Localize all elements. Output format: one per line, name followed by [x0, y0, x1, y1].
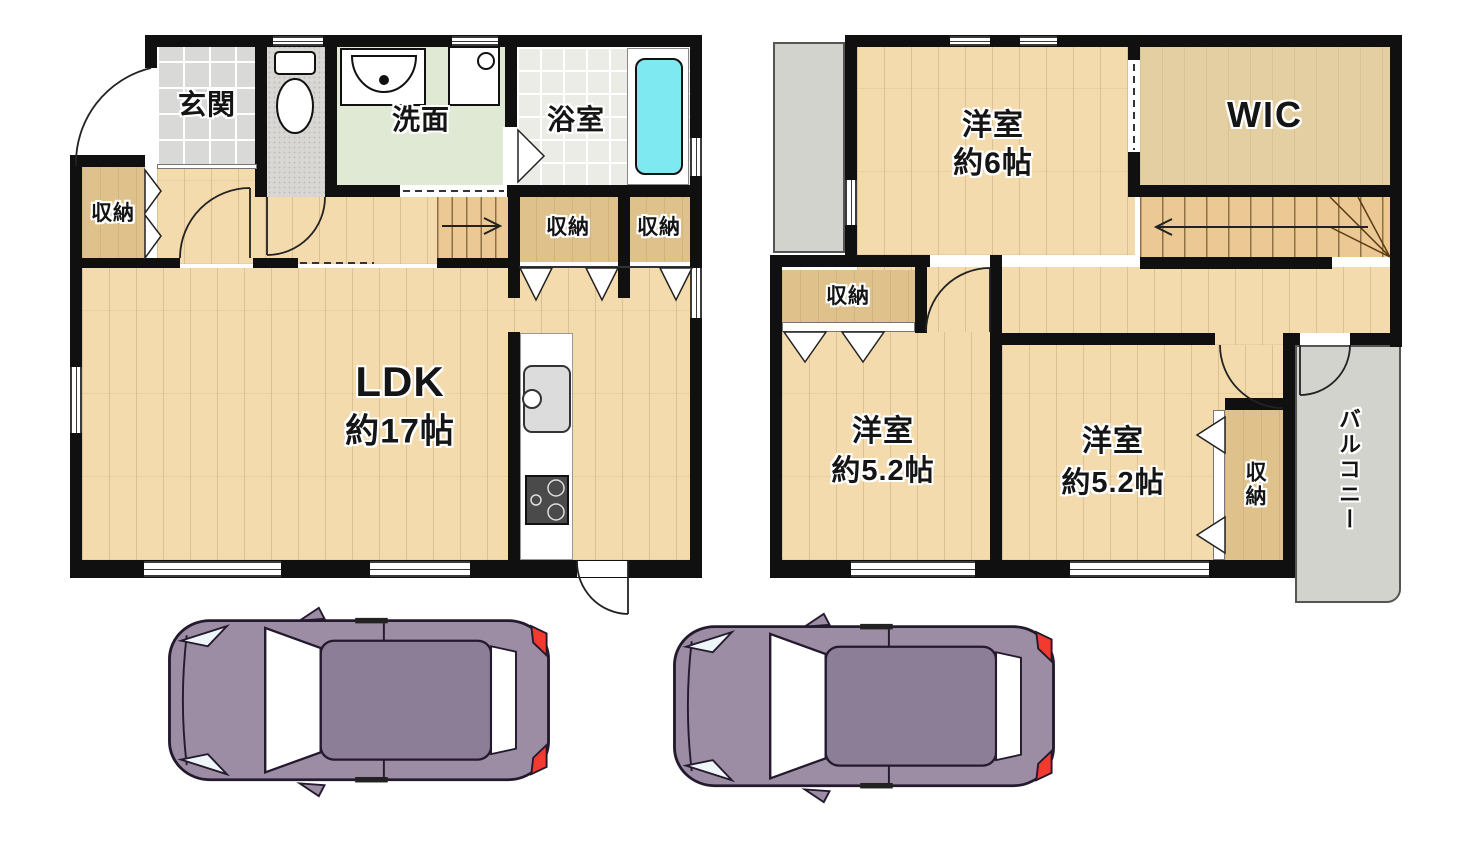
entrance-door-arc-icon [76, 68, 151, 166]
balcony-label: バルコニー [1332, 408, 1364, 533]
car-2 [663, 612, 1065, 804]
ldk-name-label: LDK [355, 358, 444, 406]
closet-front-line [519, 266, 690, 268]
bathroom-window [690, 138, 702, 176]
kitchen-wall [508, 332, 520, 560]
wall [770, 255, 782, 578]
closet-a-label: 収納 [546, 211, 590, 241]
wall [1283, 333, 1295, 560]
window [845, 180, 857, 225]
wall [845, 35, 857, 267]
bedroom2-size-label: 約5.2帖 [831, 447, 934, 489]
washroom-label: 洗面 [392, 98, 450, 138]
roof-terrace-strip [773, 42, 845, 253]
bedroom3-name-label: 洋室 [1082, 416, 1144, 460]
wall [990, 255, 1002, 560]
staircase-1f [437, 190, 508, 262]
wall [770, 255, 857, 267]
staircase-2f [1140, 197, 1390, 257]
window [452, 36, 498, 46]
wall [145, 35, 702, 47]
bathroom-door-opening [503, 127, 519, 185]
balcony-door-opening [1300, 333, 1350, 345]
bathtub-icon [635, 58, 683, 175]
wall [517, 185, 702, 197]
bathroom-label: 浴室 [547, 98, 605, 138]
wall [325, 35, 337, 197]
wall [1140, 257, 1332, 269]
wall [1128, 185, 1402, 197]
ldk-size-label: 約17帖 [345, 404, 455, 453]
wall [770, 560, 1295, 578]
window [273, 36, 323, 46]
genkan-label: 玄関 [178, 83, 236, 123]
closet-right-front [1213, 410, 1225, 560]
ldk-door-opening [577, 561, 628, 577]
wall [253, 258, 298, 268]
wall [437, 258, 519, 268]
bedroom2-name-label: 洋室 [852, 406, 914, 450]
ldk-window-2 [370, 561, 470, 577]
window [70, 367, 82, 433]
closet-b-label: 収納 [637, 211, 681, 241]
wall [1002, 333, 1215, 345]
floorplan-image: 玄関 収納 洗面 浴室 収納 収納 LDK 約17帖 [0, 0, 1467, 848]
kitchen-counter [520, 333, 573, 560]
ldk-window-1 [144, 561, 281, 577]
car-1 [158, 606, 560, 798]
wall [915, 265, 927, 333]
bedroom3-size-label: 約5.2帖 [1061, 459, 1164, 501]
toilet-room-floor [267, 45, 325, 197]
entrance-door-opening [145, 68, 157, 168]
window [950, 36, 990, 46]
closet-left-label: 収納 [91, 197, 135, 227]
hall-closet-label: 収納 [826, 280, 870, 310]
wall [330, 185, 400, 197]
window [1020, 36, 1057, 46]
genkan-step [157, 164, 257, 169]
wall [618, 185, 630, 298]
wall [255, 35, 267, 197]
wic-label: WIC [1227, 94, 1303, 136]
washroom-sliding-door [400, 185, 507, 197]
window [690, 268, 702, 318]
wic-sliding-opening [1128, 60, 1140, 152]
wall [508, 185, 520, 298]
hall-closet-front [782, 322, 915, 332]
bedroom3-window [1070, 561, 1209, 577]
wall [1225, 398, 1283, 410]
bedroom1-size-label: 約6帖 [953, 138, 1033, 182]
wall [70, 155, 157, 167]
wall [70, 258, 180, 268]
wall [845, 35, 1402, 47]
floor-2-plan: 洋室 約6帖 WIC 収納 洋室 約5.2帖 洋室 約5.2帖 収納 バルコニー [768, 30, 1408, 582]
closet-right-label: 収納 [1239, 461, 1269, 509]
floor-1-plan: 玄関 収納 洗面 浴室 収納 収納 LDK 約17帖 [62, 30, 710, 582]
bedroom2-window [851, 561, 975, 577]
